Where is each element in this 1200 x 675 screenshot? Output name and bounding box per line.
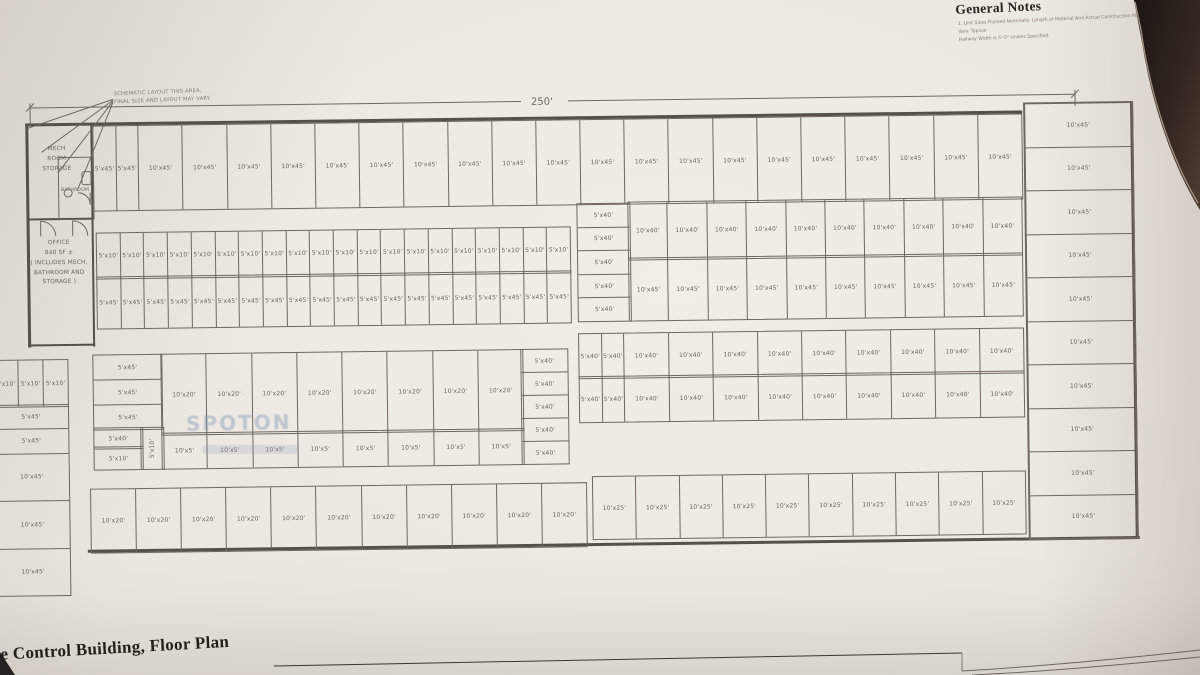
photo-overlays	[0, 0, 1200, 675]
desk-background	[1134, 0, 1200, 210]
desk-corner-bottom-left	[0, 652, 15, 675]
floor-plan-photo: MECH ROOM STORAGE BATHROOM OFFICE 840 SF…	[0, 0, 1200, 675]
